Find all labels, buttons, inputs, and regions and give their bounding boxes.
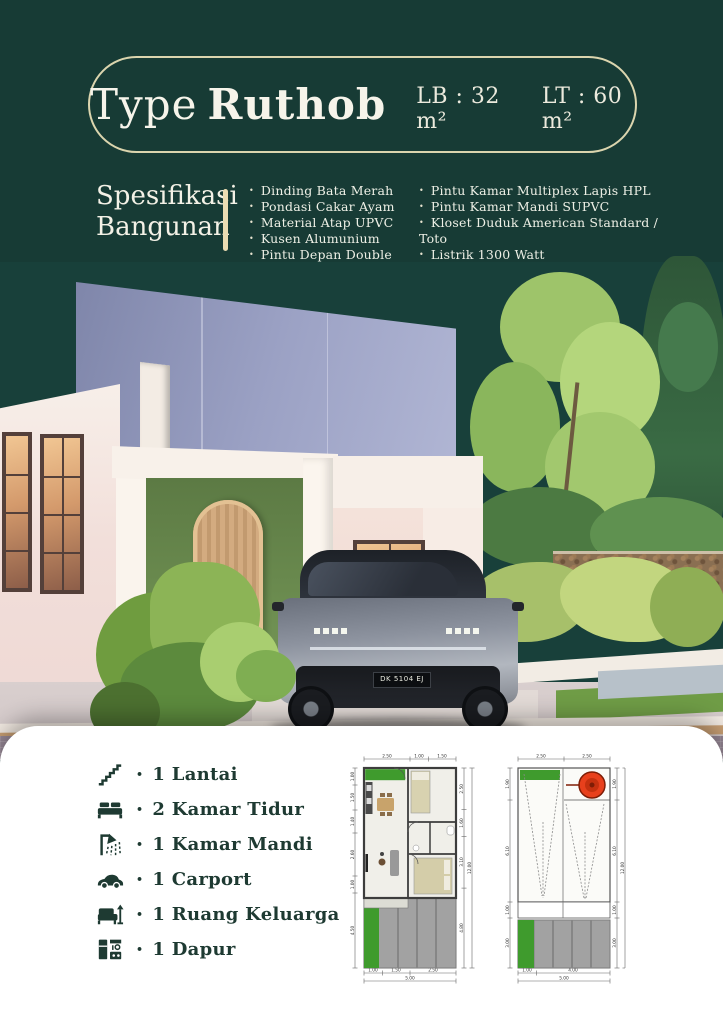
svg-text:1.00: 1.00 <box>414 754 424 760</box>
svg-text:2.60: 2.60 <box>350 849 356 859</box>
spec-item: Material Atap UPVC <box>249 215 419 231</box>
svg-text:3.00: 3.00 <box>505 938 511 948</box>
bed-icon <box>94 794 136 824</box>
pixel-headlight <box>314 628 320 634</box>
svg-text:1.00: 1.00 <box>350 771 356 781</box>
svg-text:2.50: 2.50 <box>382 754 392 760</box>
car: DK 5104 EJ <box>278 550 518 740</box>
house-photo: DK 5104 EJ <box>0 262 723 760</box>
floor-plan: 2.50 1.00 1.50 1.00 1.50 1.40 2.60 1.00 … <box>344 752 478 984</box>
garden-strip <box>518 920 534 968</box>
spec-item: Listrik 1300 Watt <box>419 247 689 263</box>
spec-heading: Spesifikasi Bangunan <box>96 181 238 243</box>
license-plate: DK 5104 EJ <box>373 672 431 688</box>
svg-text:6.10: 6.10 <box>505 846 511 856</box>
sofa <box>390 850 399 876</box>
feature-label: 1 Dapur <box>136 939 236 960</box>
windshield <box>308 562 458 596</box>
svg-text:4.80: 4.80 <box>459 923 465 933</box>
feature-item: 1 Carport <box>94 867 340 891</box>
pixel-headlight <box>446 628 452 634</box>
left-window-1 <box>2 432 32 592</box>
title-badge: TypeRuthob LB : 32 m² LT : 60 m² <box>88 56 637 153</box>
sink <box>413 845 419 851</box>
svg-text:2.50: 2.50 <box>459 784 465 794</box>
side-mirror <box>512 602 524 611</box>
svg-text:1.40: 1.40 <box>350 816 356 826</box>
svg-text:2.50: 2.50 <box>536 754 546 760</box>
canopy-edge <box>518 902 610 918</box>
svg-text:12.00: 12.00 <box>620 862 626 875</box>
car-icon <box>94 864 136 894</box>
terrace <box>364 898 408 908</box>
svg-text:3.00: 3.00 <box>612 938 618 948</box>
shower-icon <box>94 829 136 859</box>
feature-label: 2 Kamar Tidur <box>136 799 304 820</box>
tv <box>366 854 369 872</box>
svg-text:1.60: 1.60 <box>459 818 465 828</box>
roof-plan: 2.50 2.50 1.90 6.10 1.00 3.00 1.90 6.10 … <box>500 752 626 984</box>
dining-table <box>377 798 394 811</box>
kitchen-icon <box>94 934 136 964</box>
svg-text:5.00: 5.00 <box>559 976 569 982</box>
spec-item: Pondasi Cakar Ayam <box>249 199 419 215</box>
svg-text:1.90: 1.90 <box>612 779 618 789</box>
svg-text:12.00: 12.00 <box>467 862 473 875</box>
garden-strip <box>364 908 379 968</box>
spec-item: Pintu Kamar Mandi SUPVC <box>419 199 689 215</box>
spec-item: Dinding Bata Merah <box>249 183 419 199</box>
toilet <box>447 826 454 835</box>
right-parapet <box>333 456 483 510</box>
shrub <box>236 650 296 702</box>
svg-text:1.50: 1.50 <box>437 754 447 760</box>
svg-text:2.50: 2.50 <box>582 754 592 760</box>
feature-item: 1 Kamar Mandi <box>94 832 340 856</box>
svg-text:1.50: 1.50 <box>350 792 356 802</box>
side-mirror <box>272 602 284 611</box>
feature-item: 1 Ruang Keluarga <box>94 902 340 926</box>
details-card: 1 Lantai 2 Kamar Tidur 1 Kamar Mandi 1 C… <box>0 726 723 1024</box>
svg-text:1.00: 1.00 <box>505 905 511 915</box>
svg-text:1.00: 1.00 <box>612 905 618 915</box>
feature-item: 1 Lantai <box>94 762 340 786</box>
stairs-icon <box>94 759 136 789</box>
vertical-divider <box>223 189 228 251</box>
spec-item: Pintu Kamar Multiplex Lapis HPL <box>419 183 689 199</box>
svg-text:5.00: 5.00 <box>405 976 415 982</box>
roof-garden-strip <box>520 770 560 780</box>
left-window-2 <box>40 434 84 594</box>
spec-item: Kloset Duduk American Standard / Toto <box>419 215 689 247</box>
feature-label: 1 Ruang Keluarga <box>136 904 340 925</box>
sofa-icon <box>94 899 136 929</box>
feature-list: 1 Lantai 2 Kamar Tidur 1 Kamar Mandi 1 C… <box>94 762 340 961</box>
svg-text:1.00: 1.00 <box>350 879 356 889</box>
svg-text:6.10: 6.10 <box>612 846 618 856</box>
svg-text:1.90: 1.90 <box>505 779 511 789</box>
feature-label: 1 Lantai <box>136 764 238 785</box>
feature-label: 1 Carport <box>136 869 252 890</box>
front-garden <box>365 769 405 780</box>
svg-text:4.50: 4.50 <box>350 925 356 935</box>
feature-item: 2 Kamar Tidur <box>94 797 340 821</box>
building-area: LB : 32 m² <box>416 84 512 134</box>
flyer-page: TypeRuthob LB : 32 m² LT : 60 m² Spesifi… <box>0 0 723 1024</box>
page-title: TypeRuthob <box>90 80 386 129</box>
feature-item: 1 Dapur <box>94 937 340 961</box>
title-bold: Ruthob <box>207 80 386 129</box>
land-area: LT : 60 m² <box>542 84 635 134</box>
title-regular: Type <box>90 80 197 129</box>
feature-label: 1 Kamar Mandi <box>136 834 313 855</box>
svg-text:3.10: 3.10 <box>459 857 465 867</box>
spec-item: Kusen Alumunium <box>249 231 419 247</box>
